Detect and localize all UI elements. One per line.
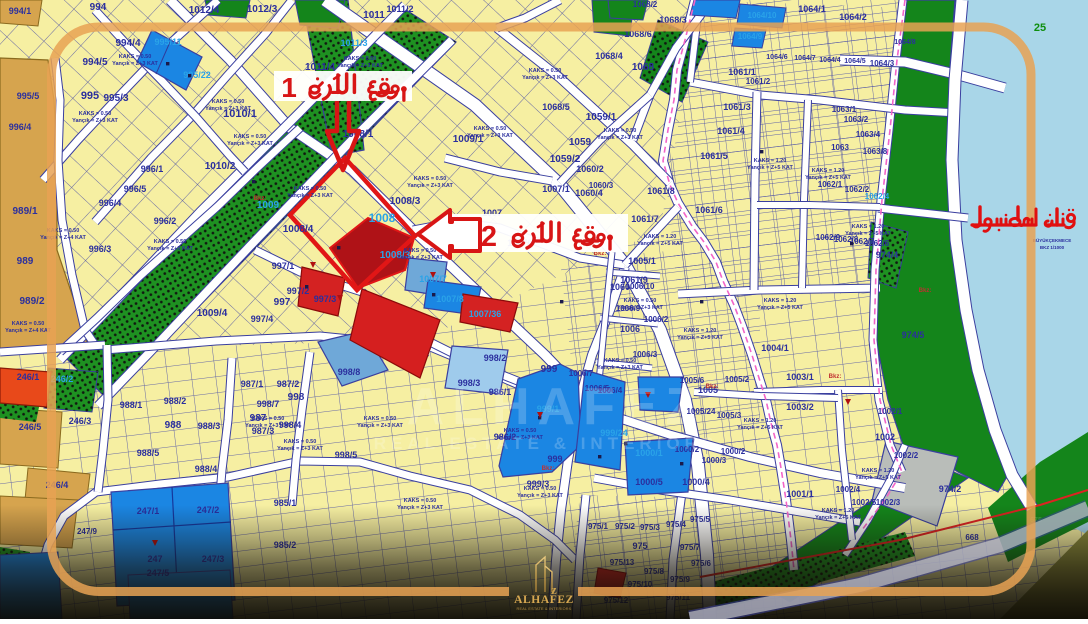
svg-text:Bkz:: Bkz: [829, 374, 842, 380]
svg-text:1064/10: 1064/10 [748, 11, 777, 20]
svg-text:KAKS = 0.50: KAKS = 0.50 [234, 134, 267, 140]
svg-text:1005/2: 1005/2 [725, 375, 750, 384]
svg-text:Yançık = Z+3 KAT: Yançık = Z+3 KAT [72, 118, 118, 124]
svg-text:994/4: 994/4 [115, 38, 140, 49]
svg-text:1008/4: 1008/4 [283, 224, 314, 235]
svg-text:KAKS = 0.50: KAKS = 0.50 [624, 298, 657, 304]
svg-text:KAKS = 1.20: KAKS = 1.20 [852, 224, 885, 230]
svg-text:1009/4: 1009/4 [197, 308, 228, 319]
svg-text:Yançık = Z+3 KAT: Yançık = Z+3 KAT [407, 183, 453, 189]
svg-text:1002/1: 1002/1 [878, 407, 903, 416]
svg-text:1060/2: 1060/2 [576, 164, 604, 174]
svg-text:KAKS = 0.50: KAKS = 0.50 [79, 111, 112, 117]
svg-text:Yançık = Z+5 KAT: Yançık = Z+5 KAT [737, 425, 783, 431]
svg-text:246/5: 246/5 [19, 422, 42, 432]
svg-text:997/1: 997/1 [272, 261, 295, 271]
svg-text:Yançık = Z+3 KAT: Yançık = Z+3 KAT [337, 63, 383, 69]
svg-text:Yançık = Z+3 KAT: Yançık = Z+3 KAT [205, 106, 251, 112]
svg-text:KAKS = 0.50: KAKS = 0.50 [414, 176, 447, 182]
svg-text:KAKS = 0.50: KAKS = 0.50 [344, 56, 377, 62]
svg-text:ALHAFEZ: ALHAFEZ [514, 594, 574, 606]
svg-text:1007/8: 1007/8 [436, 294, 464, 304]
svg-text:1005/1: 1005/1 [628, 256, 656, 266]
svg-text:Yançık = Z+5 KAT: Yançık = Z+5 KAT [805, 175, 851, 181]
svg-text:997/4: 997/4 [251, 314, 274, 324]
svg-text:1006: 1006 [620, 324, 640, 334]
svg-text:25: 25 [1034, 22, 1046, 34]
svg-text:1059: 1059 [569, 137, 592, 148]
svg-text:Yançık = Z+3 KAT: Yançık = Z+3 KAT [287, 193, 333, 199]
svg-text:994/1: 994/1 [9, 6, 32, 16]
svg-text:1012/3: 1012/3 [247, 4, 278, 15]
svg-text:Yançık = Z+3 KAT: Yançık = Z+3 KAT [245, 423, 291, 429]
svg-text:246/3: 246/3 [69, 416, 92, 426]
svg-text:Yançık = Z+5 KAT: Yançık = Z+5 KAT [845, 231, 891, 237]
svg-text:995/11: 995/11 [154, 37, 181, 47]
svg-text:KAKS = 0.50: KAKS = 0.50 [119, 54, 152, 60]
svg-text:997/3: 997/3 [314, 294, 337, 304]
svg-text:Yançık = Z+3 KAT: Yançık = Z+3 KAT [112, 61, 158, 67]
svg-text:Yançık = Z+4 KAT: Yançık = Z+4 KAT [5, 328, 51, 334]
svg-text:1064/2: 1064/2 [839, 12, 867, 22]
svg-text:1008/3: 1008/3 [390, 196, 421, 207]
svg-text:989/2: 989/2 [19, 296, 44, 307]
svg-text:1061/3: 1061/3 [723, 102, 751, 112]
svg-text:Yançık = Z+3 KAT: Yançık = Z+3 KAT [277, 446, 323, 452]
svg-text:1000/5: 1000/5 [635, 477, 663, 487]
svg-text:Yançık = Z+5 KAT: Yançık = Z+5 KAT [855, 475, 901, 481]
svg-text:1061/6: 1061/6 [695, 205, 723, 215]
svg-text:999: 999 [541, 364, 558, 375]
svg-text:Bkz:: Bkz: [706, 384, 719, 390]
svg-text:KAKS = 0.50: KAKS = 0.50 [524, 486, 557, 492]
svg-text:1011: 1011 [363, 10, 385, 21]
svg-text:1064/6: 1064/6 [766, 54, 788, 61]
svg-text:996/4: 996/4 [99, 198, 122, 208]
svg-text:1068/5: 1068/5 [542, 102, 570, 112]
svg-text:1063: 1063 [831, 143, 849, 152]
svg-text:Yançık = Z+3 KAT: Yançık = Z+3 KAT [522, 75, 568, 81]
svg-text:997: 997 [274, 297, 291, 308]
svg-text:1064/7: 1064/7 [794, 55, 816, 62]
svg-text:KAKS = 0.50: KAKS = 0.50 [604, 358, 637, 364]
svg-text:1061/7: 1061/7 [631, 214, 659, 224]
svg-text:995/5: 995/5 [17, 91, 40, 101]
svg-text:Bkz:: Bkz: [254, 196, 267, 202]
svg-text:KAKS = 0.50: KAKS = 0.50 [212, 99, 245, 105]
svg-text:1012/4: 1012/4 [189, 5, 220, 16]
svg-text:1007/36: 1007/36 [469, 309, 502, 319]
svg-text:KAKS = 1.20: KAKS = 1.20 [764, 298, 797, 304]
svg-text:1003/1: 1003/1 [786, 372, 814, 382]
svg-text:1005/3: 1005/3 [717, 411, 742, 420]
svg-text:998/8: 998/8 [338, 367, 361, 377]
svg-text:1061/9: 1061/9 [620, 275, 648, 285]
svg-text:Yançık = Z+5 KAT: Yançık = Z+5 KAT [747, 165, 793, 171]
svg-text:988/5: 988/5 [137, 448, 160, 458]
svg-text:1068: 1068 [632, 62, 655, 73]
svg-text:Bkz:: Bkz: [919, 288, 932, 294]
svg-text:Yançık = Z+3 KAT: Yançık = Z+3 KAT [467, 133, 513, 139]
svg-text:KAKS = 1.20: KAKS = 1.20 [744, 418, 777, 424]
svg-text:1000/2: 1000/2 [721, 447, 746, 456]
svg-text:974/5: 974/5 [902, 330, 925, 340]
svg-text:KAKS = 0.50: KAKS = 0.50 [154, 239, 187, 245]
svg-text:Bkz:: Bkz: [542, 466, 555, 472]
svg-text:988/2: 988/2 [164, 396, 187, 406]
svg-text:1002/4: 1002/4 [836, 485, 861, 494]
svg-text:Yançık = Z+3 KAT: Yançık = Z+3 KAT [517, 493, 563, 499]
svg-text:998: 998 [288, 392, 305, 403]
svg-text:1061/8: 1061/8 [647, 186, 675, 196]
svg-text:1007/1: 1007/1 [542, 184, 570, 194]
svg-text:988/4: 988/4 [195, 464, 218, 474]
svg-text:BÜYÜKÇEKMECE: BÜYÜKÇEKMECE [1033, 237, 1072, 243]
svg-text:1064/1: 1064/1 [798, 4, 826, 14]
svg-text:1060/3: 1060/3 [589, 181, 614, 190]
svg-text:1000/3: 1000/3 [702, 456, 727, 465]
svg-text:KAKS = 0.50: KAKS = 0.50 [474, 126, 507, 132]
svg-text:996/3: 996/3 [89, 244, 112, 254]
svg-text:BKZ 1/1000: BKZ 1/1000 [1040, 245, 1065, 250]
svg-text:988: 988 [165, 420, 182, 431]
svg-text:998/2: 998/2 [484, 353, 507, 363]
svg-text:1003/2: 1003/2 [786, 402, 814, 412]
svg-text:1064/3: 1064/3 [870, 59, 895, 68]
svg-text:KAKS = 0.50: KAKS = 0.50 [404, 498, 437, 504]
svg-text:994/5: 994/5 [82, 57, 107, 68]
svg-text:1061/4: 1061/4 [717, 126, 745, 136]
svg-text:REAL ESTATE & INTERIORS: REAL ESTATE & INTERIORS [374, 434, 719, 453]
svg-text:1004/1: 1004/1 [761, 343, 789, 353]
svg-text:KAKS = 0.50: KAKS = 0.50 [404, 248, 437, 254]
svg-text:ALHAFEZ: ALHAFEZ [407, 378, 706, 436]
svg-text:1: 1 [281, 72, 297, 103]
svg-text:1064/4: 1064/4 [819, 57, 841, 64]
svg-text:995/3: 995/3 [103, 93, 128, 104]
svg-text:988/3: 988/3 [198, 421, 221, 431]
svg-text:987/2: 987/2 [277, 379, 300, 389]
svg-text:246/1: 246/1 [17, 372, 40, 382]
svg-text:Yançık = Z+5 KAT: Yançık = Z+5 KAT [637, 241, 683, 247]
svg-text:KAKS = 0.50: KAKS = 0.50 [604, 128, 637, 134]
svg-text:1061/1: 1061/1 [728, 67, 756, 77]
svg-text:989: 989 [17, 256, 34, 267]
svg-text:1062/1: 1062/1 [818, 180, 843, 189]
svg-text:987/1: 987/1 [241, 379, 264, 389]
svg-text:998/5: 998/5 [335, 450, 358, 460]
svg-text:KAKS = 0.50: KAKS = 0.50 [252, 416, 285, 422]
svg-text:Yançık = Z+3 KAT: Yançık = Z+3 KAT [617, 305, 663, 311]
svg-text:Yançık = Z+3 KAT: Yançık = Z+3 KAT [147, 246, 193, 252]
svg-text:Yançık = Z+3 KAT: Yançık = Z+3 KAT [357, 423, 403, 429]
svg-text:1064/8: 1064/8 [894, 39, 916, 46]
svg-text:1062/4: 1062/4 [865, 192, 890, 201]
svg-text:996/5: 996/5 [124, 184, 147, 194]
svg-text:1064/5: 1064/5 [844, 58, 866, 65]
svg-text:988/1: 988/1 [120, 400, 143, 410]
svg-text:KAKS = 0.50: KAKS = 0.50 [284, 439, 317, 445]
svg-text:1061/2: 1061/2 [746, 77, 771, 86]
svg-text:1008: 1008 [369, 211, 396, 225]
svg-text:REAL ESTATE & INTERIORS: REAL ESTATE & INTERIORS [517, 607, 572, 611]
svg-text:KAKS = 1.20: KAKS = 1.20 [754, 158, 787, 164]
svg-text:1062/6: 1062/6 [865, 239, 890, 248]
svg-text:2: 2 [481, 221, 497, 253]
svg-text:974/4: 974/4 [876, 250, 899, 260]
svg-text:Yançık = Z+3 KAT: Yançık = Z+3 KAT [397, 255, 443, 261]
svg-text:KAKS = 1.20: KAKS = 1.20 [684, 328, 717, 334]
svg-text:1011/3: 1011/3 [340, 38, 367, 48]
svg-text:999: 999 [547, 454, 562, 464]
svg-text:996/4: 996/4 [9, 122, 32, 132]
svg-text:996/1: 996/1 [141, 164, 164, 174]
svg-text:KAKS = 0.50: KAKS = 0.50 [529, 68, 562, 74]
svg-text:1002: 1002 [875, 432, 895, 442]
svg-text:1061/5: 1061/5 [700, 151, 728, 161]
svg-text:Yançık = Z+5 KAT: Yançık = Z+5 KAT [757, 305, 803, 311]
svg-text:1006/2: 1006/2 [644, 315, 669, 324]
svg-text:1063/1: 1063/1 [832, 105, 857, 114]
svg-text:KAKS = 1.20: KAKS = 1.20 [862, 468, 895, 474]
svg-text:1068/2: 1068/2 [633, 0, 658, 9]
svg-text:KAKS = 1.20: KAKS = 1.20 [812, 168, 845, 174]
svg-text:1010/2: 1010/2 [205, 161, 236, 172]
svg-text:1001/1: 1001/1 [786, 489, 814, 499]
svg-text:1002/2: 1002/2 [894, 451, 919, 460]
svg-text:1006/7: 1006/7 [569, 369, 594, 378]
svg-text:1063/8: 1063/8 [863, 147, 888, 156]
svg-text:995/22: 995/22 [183, 70, 211, 80]
svg-text:1011/2: 1011/2 [386, 4, 413, 14]
svg-text:1006/3: 1006/3 [633, 350, 658, 359]
svg-text:Yançık = Z+5 KAT: Yançık = Z+5 KAT [677, 335, 723, 341]
svg-text:995: 995 [81, 90, 99, 102]
svg-text:KAKS = 0.50: KAKS = 0.50 [294, 186, 327, 192]
svg-text:1063/4: 1063/4 [856, 130, 881, 139]
svg-text:998/7: 998/7 [257, 399, 280, 409]
svg-text:Yançık = Z+3 KAT: Yançık = Z+3 KAT [597, 135, 643, 141]
svg-text:Yançık = Z+3 KAT: Yançık = Z+3 KAT [597, 365, 643, 371]
svg-text:1068/4: 1068/4 [595, 51, 623, 61]
svg-text:1059/1: 1059/1 [586, 112, 617, 123]
svg-text:996/2: 996/2 [154, 216, 177, 226]
svg-text:974/2: 974/2 [939, 484, 962, 494]
svg-text:KAKS = 0.50: KAKS = 0.50 [364, 416, 397, 422]
svg-text:KAKS = 0.50: KAKS = 0.50 [12, 321, 45, 327]
svg-text:1000/4: 1000/4 [682, 477, 710, 487]
svg-text:1063/2: 1063/2 [844, 115, 869, 124]
svg-text:989/1: 989/1 [12, 206, 37, 217]
svg-text:994: 994 [90, 2, 107, 13]
svg-text:KAKS = 1.20: KAKS = 1.20 [644, 234, 677, 240]
svg-text:1064/9: 1064/9 [738, 32, 763, 41]
svg-text:Yançık = Z+3 KAT: Yançık = Z+3 KAT [227, 141, 273, 147]
